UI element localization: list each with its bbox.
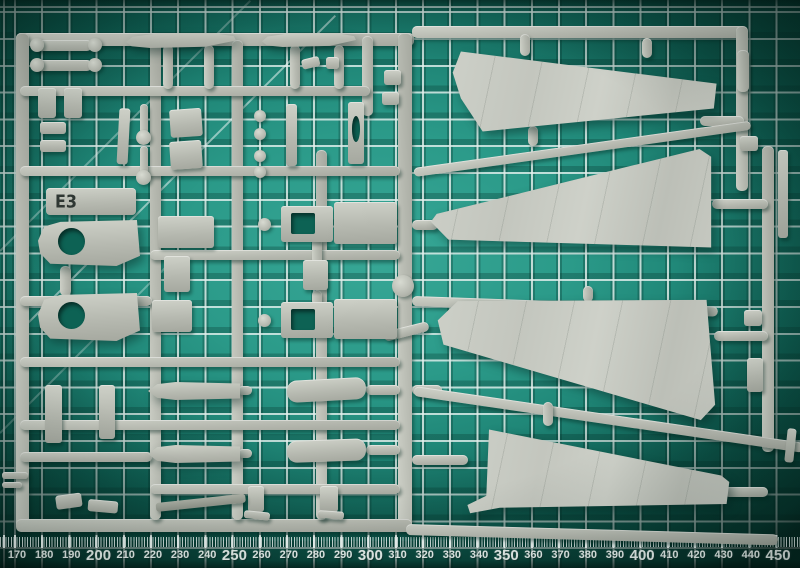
sprue-part [740,136,758,151]
sprue-part [301,56,321,70]
part-with-hole [38,220,140,266]
wing-part-third [432,296,718,424]
sprue-part [318,510,344,520]
sprue-part [254,150,266,162]
drop-tank-shape [148,382,240,400]
sprue-part [286,104,297,166]
sprue-part [136,130,151,145]
sprue-part [164,256,190,292]
sprue-part [20,166,400,176]
sprue-part [737,50,749,92]
sprue-part [20,452,152,462]
sprue-part [55,492,83,509]
sprue-part [40,122,66,134]
sprue-part [258,218,271,231]
stabilizer-blade-shape [262,33,356,47]
wing-part-upper-shape [450,45,722,137]
sprue-part [248,486,264,512]
sprue-part [30,58,44,72]
sprue-part [334,299,397,339]
sprue-part [158,216,214,248]
sprue-part [382,92,399,105]
sprue-part [747,358,763,392]
cylinder-part [286,377,366,403]
sprue-part [16,519,412,532]
sprue-part [254,128,266,140]
sprue-part [238,449,252,458]
sprue-part [60,266,71,296]
photo-sprue-on-cutting-mat: 1701801902002102202302402502602702802903… [0,0,800,568]
sprue-part [412,455,468,465]
drop-tank [148,382,240,400]
runner-node [392,275,414,297]
wing-part-lower [462,424,732,516]
sprue-part [204,45,214,89]
sprue-part [366,445,400,455]
sprue-part [38,88,56,118]
sprue-part [384,70,401,85]
sprue-part [20,420,400,430]
stabilizer-blade [126,33,236,48]
sprue-part [744,310,762,326]
sprue-part [334,202,397,244]
sprue-part [291,309,315,330]
gear-door [45,385,62,443]
drop-tank-shape [148,445,240,463]
sprue-part [169,108,203,138]
sprue-part [290,45,300,89]
part-with-hole-shape [38,293,140,341]
sprue-part [778,150,788,238]
sprue-part [30,38,44,52]
sprue-gate-label: E3 [55,191,77,212]
sprue-part [762,146,774,452]
stabilizer-blade-shape [126,33,236,48]
sprue-part [40,140,66,152]
sprue-part [784,428,797,463]
sprue-part [58,228,85,255]
sprue-part [58,302,85,329]
sprue-part [20,357,400,367]
part-with-hole [38,293,140,341]
sprue-part [366,385,400,395]
sprue-part [254,166,266,178]
part-with-hole-shape [38,220,140,266]
sprue-part [152,300,192,332]
plastic-sprue [0,0,800,568]
sprue-part [2,472,28,479]
sprue-part [406,524,778,545]
sprue-part [326,57,339,69]
sprue-part [2,482,22,488]
wing-part-lower-shape [462,424,732,516]
sprue-part [88,38,102,52]
sprue-part [412,26,746,38]
wing-part-third-shape [432,296,718,424]
gear-door [99,385,115,439]
sprue-part [258,314,271,327]
sprue-part [87,499,118,514]
sprue-part [64,88,82,118]
drop-tank [148,445,240,463]
sprue-part [352,116,360,142]
sprue-part [320,486,338,512]
sprue-part [117,108,131,164]
wing-part-upper [450,45,722,137]
sprue-part [150,484,400,494]
sprue-part [163,45,173,89]
wing-part-second [425,140,717,252]
sprue-part [714,331,768,341]
sprue-part [291,213,315,234]
sprue-part [254,110,266,122]
sprue-part [136,170,151,185]
cylinder-part [287,438,367,463]
sprue-part [238,386,252,395]
wing-part-second-shape [425,140,717,252]
sprue-part [303,260,328,290]
sprue-part [88,58,102,72]
sprue-part [712,199,768,209]
sprue-part [169,140,203,170]
stabilizer-blade [262,33,356,47]
